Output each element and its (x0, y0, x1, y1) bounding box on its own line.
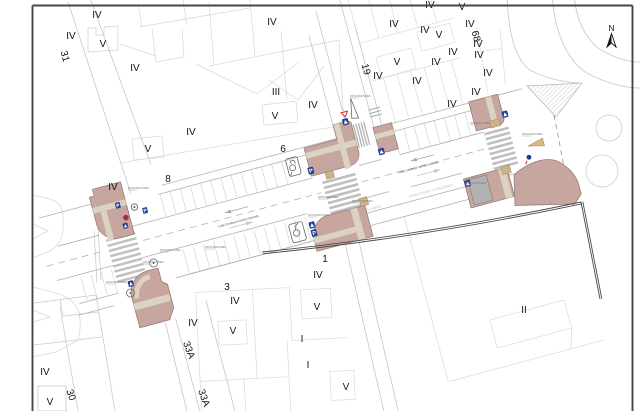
svg-text:IV: IV (230, 296, 240, 307)
svg-text:PASO PEATONES: PASO PEATONES (470, 122, 491, 125)
svg-text:PASO PEATONES: PASO PEATONES (522, 133, 543, 136)
svg-text:PASO PEATONES: PASO PEATONES (143, 261, 164, 264)
svg-text:IV: IV (448, 47, 458, 58)
svg-text:I: I (301, 334, 304, 345)
svg-text:PASO PEATONES: PASO PEATONES (350, 95, 371, 98)
svg-text:V: V (459, 2, 466, 13)
svg-text:PASO PEATONES: PASO PEATONES (205, 246, 226, 249)
svg-text:N: N (608, 23, 614, 33)
svg-text:IV: IV (313, 270, 323, 281)
svg-text:V: V (314, 302, 321, 313)
svg-text:IV: IV (66, 31, 76, 42)
svg-text:PASO PEATONES: PASO PEATONES (106, 281, 127, 284)
svg-text:1: 1 (322, 254, 328, 265)
svg-text:IV: IV (389, 19, 399, 30)
svg-text:8: 8 (165, 174, 171, 185)
svg-text:II: II (521, 305, 527, 316)
svg-text:PASO PEATONES: PASO PEATONES (308, 214, 329, 217)
svg-text:PASO PEATONES: PASO PEATONES (128, 187, 149, 190)
svg-text:PASO PEATONES: PASO PEATONES (160, 249, 181, 252)
svg-text:PASO PEATONES: PASO PEATONES (318, 196, 339, 199)
svg-text:IV: IV (308, 100, 318, 111)
svg-text:IV: IV (108, 182, 118, 193)
svg-text:IV: IV (412, 76, 422, 87)
svg-text:IV: IV (92, 10, 102, 21)
svg-text:3: 3 (224, 282, 230, 293)
svg-text:IV: IV (471, 87, 481, 98)
svg-text:IV: IV (186, 127, 196, 138)
svg-text:V: V (436, 30, 443, 41)
svg-text:IV: IV (40, 367, 50, 378)
svg-text:IV: IV (465, 19, 475, 30)
svg-text:IV: IV (130, 63, 140, 74)
svg-text:I: I (307, 360, 310, 371)
svg-text:IV: IV (483, 68, 493, 79)
svg-text:IV: IV (420, 25, 430, 36)
svg-text:IV: IV (447, 99, 457, 110)
svg-text:V: V (230, 326, 237, 337)
svg-text:V: V (394, 57, 401, 68)
svg-text:IV: IV (188, 318, 198, 329)
svg-text:IV: IV (267, 17, 277, 28)
svg-text:6: 6 (280, 144, 286, 155)
svg-text:V: V (272, 111, 279, 122)
svg-text:V: V (100, 39, 107, 50)
svg-text:V: V (343, 382, 350, 393)
svg-text:PASO PEATONES: PASO PEATONES (352, 200, 373, 203)
svg-text:PASO PEATONES: PASO PEATONES (465, 182, 486, 185)
svg-text:IV: IV (474, 50, 484, 61)
svg-text:V: V (145, 144, 152, 155)
svg-text:V: V (47, 397, 54, 408)
svg-text:IV: IV (431, 57, 441, 68)
svg-text:IV: IV (373, 71, 383, 82)
svg-text:III: III (272, 87, 280, 98)
